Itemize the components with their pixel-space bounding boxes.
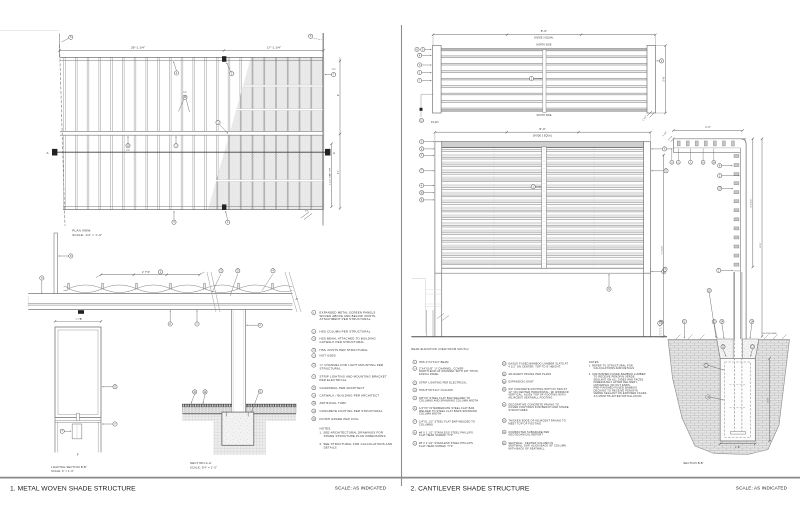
svg-text:2’-0”: 2’-0” <box>705 126 711 129</box>
svg-text:HSS 4”X4”X1/4” BEAM: HSS 4”X4”X1/4” BEAM <box>419 360 449 364</box>
svg-text:ADJACENT PAVING PER PLANS: ADJACENT PAVING PER PLANS <box>508 372 551 376</box>
svg-text:8’-6”: 8’-6” <box>760 242 762 247</box>
svg-text:PLAN VIEW:: PLAN VIEW: <box>72 228 91 232</box>
svg-text:NORTH SIDE: NORTH SIDE <box>536 44 551 46</box>
svg-text:SCALE: 1/4” = 1’-0”: SCALE: 1/4” = 1’-0” <box>72 233 102 237</box>
svg-text:PLAN: PLAN <box>431 120 439 124</box>
svg-text:REAR ELEVATION (VIEW FROM SOUT: REAR ELEVATION (VIEW FROM SOUTH) <box>411 347 468 351</box>
svg-text:HSS JOISTS PER STRUCTURAL: HSS JOISTS PER STRUCTURAL <box>320 348 369 352</box>
svg-text:GEOTECHNICAL REPORT: GEOTECHNICAL REPORT <box>508 433 543 437</box>
svg-text:9”: 9” <box>77 453 79 456</box>
svg-text:NOTES:: NOTES: <box>589 360 600 364</box>
svg-text:SCALE: 3/4” = 1’-0”: SCALE: 3/4” = 1’-0” <box>190 465 217 469</box>
svg-text:HSS COLUMN PER STRUCTURAL: HSS COLUMN PER STRUCTURAL <box>320 330 371 334</box>
svg-text:17’-1 1/4”: 17’-1 1/4” <box>267 46 281 50</box>
svg-text:TYP: TYP <box>331 69 336 71</box>
svg-text:17’: 17’ <box>336 170 340 174</box>
svg-text:LIGHTING SECTION B-B’: LIGHTING SECTION B-B’ <box>51 465 87 469</box>
svg-text:MEET TOP OF FOOTING: MEET TOP OF FOOTING <box>508 421 541 425</box>
svg-text:CONCRETE FOOTING PER STRUCTURA: CONCRETE FOOTING PER STRUCTURAL <box>320 409 383 413</box>
svg-text:GUARDRAIL PER ARCHITECT: GUARDRAIL PER ARCHITECT <box>320 386 365 390</box>
svg-text:SOUTH SIDE: SOUTH SIDE <box>763 333 778 335</box>
svg-text:ATTACHMENT PER STRUCTURAL.: ATTACHMENT PER STRUCTURAL. <box>320 317 372 321</box>
svg-text:STRUCTURAL.: STRUCTURAL. <box>320 367 342 371</box>
svg-text:7’-2 1/2”: 7’-2 1/2” <box>662 245 664 254</box>
svg-text:4 1/2” ON CENTER, TOP TO 8’ H: 4 1/2” ON CENTER, TOP TO 8’ HEIGHT. <box>508 364 561 368</box>
svg-text:SCALE: AS INDICATED: SCALE: AS INDICATED <box>736 485 788 490</box>
svg-text:ARTIFICIAL TURF: ARTIFICIAL TURF <box>320 401 347 405</box>
svg-text:CATWALK / BUILDING PER ARCHITE: CATWALK / BUILDING PER ARCHITECT <box>320 393 380 397</box>
svg-text:STRUCTURES: STRUCTURES <box>508 408 527 412</box>
svg-text:DETAILS: DETAILS <box>324 446 337 450</box>
svg-text:TYP: TYP <box>126 150 131 152</box>
svg-text:HSS 8”X8”X1/4” COLUMN: HSS 8”X8”X1/4” COLUMN <box>419 388 453 392</box>
svg-text:A’: A’ <box>296 297 299 301</box>
svg-text:2’ TYP: 2’ TYP <box>142 271 150 274</box>
svg-text:FASCIA PANEL: FASCIA PANEL <box>419 372 439 376</box>
svg-text:3-6 MONTHS AFTER INSTALLATION.: 3-6 MONTHS AFTER INSTALLATION. <box>594 394 643 398</box>
svg-text:1 1/2” GAP TYP.: 1 1/2” GAP TYP. <box>328 167 331 185</box>
svg-text:EXPANSION JOINT: EXPANSION JOINT <box>508 379 534 383</box>
svg-text:FLAT HEAD SCREW, TYP: FLAT HEAD SCREW, TYP <box>419 433 453 437</box>
svg-text:CALCULATIONS AND DETAILS: CALCULATIONS AND DETAILS <box>594 366 635 370</box>
svg-text:2%: 2% <box>305 211 308 213</box>
svg-text:2’-6 1/2”: 2’-6 1/2” <box>751 198 753 207</box>
svg-text:SCALE: 6” = 1’-0”: SCALE: 6” = 1’-0” <box>51 469 74 473</box>
svg-text:A: A <box>47 151 49 155</box>
svg-text:PER ELECTRICAL: PER ELECTRICAL <box>320 378 347 382</box>
svg-text:NOT USED: NOT USED <box>320 354 336 358</box>
svg-text:WITH BACK OF SEATWALL.: WITH BACK OF SEATWALL. <box>508 446 545 450</box>
svg-text:ADJACENT SEATWALL FOOTING: ADJACENT SEATWALL FOOTING <box>508 395 552 399</box>
svg-text:1. METAL WOVEN SHADE STRUCTURE: 1. METAL WOVEN SHADE STRUCTURE <box>10 485 136 492</box>
svg-text:4’ TYP: 4’ TYP <box>329 148 331 155</box>
svg-text:SHADE STRUCTURE PLAN DIMENSION: SHADE STRUCTURE PLAN DIMENSIONS. <box>324 434 387 438</box>
svg-text:1’-2”: 1’-2” <box>76 318 81 320</box>
svg-text:SOUTH SIDE: SOUTH SIDE <box>536 115 551 117</box>
svg-text:FINISH GRADE PER CIVIL: FINISH GRADE PER CIVIL <box>320 417 360 421</box>
svg-text:A: A <box>333 151 335 155</box>
svg-text:COLUMN WIDTH: COLUMN WIDTH <box>419 412 441 416</box>
svg-text:COLUMNS AND SPANNING COLUMN WI: COLUMNS AND SPANNING COLUMN WIDTH <box>419 399 478 403</box>
svg-text:9’: 9’ <box>336 94 340 97</box>
svg-text:COLUMNS: COLUMNS <box>419 422 433 426</box>
svg-text:CATWALK PER STRUCTURAL.: CATWALK PER STRUCTURAL. <box>320 340 366 344</box>
svg-text:2. CANTILEVER SHADE STRUCTURE: 2. CANTILEVER SHADE STRUCTURE <box>411 485 530 492</box>
svg-text:SECTION B-B’: SECTION B-B’ <box>683 461 704 465</box>
svg-text:8’-0”: 8’-0” <box>541 29 548 33</box>
svg-text:DIVIDE 3 EQUAL: DIVIDE 3 EQUAL <box>534 37 554 40</box>
svg-text:SECTION A-A’: SECTION A-A’ <box>190 461 212 465</box>
svg-text:1’-6”: 1’-6” <box>735 447 740 449</box>
svg-text:FLAT HEAD SCREW, TYP: FLAT HEAD SCREW, TYP <box>419 444 453 448</box>
svg-text:4’-6”: 4’-6” <box>767 397 769 402</box>
svg-text:STRIP LIGHTING PER ELECTRICAL: STRIP LIGHTING PER ELECTRICAL <box>419 381 467 385</box>
svg-text:TYP: TYP <box>183 92 188 94</box>
svg-text:SCALE: AS INDICATED: SCALE: AS INDICATED <box>335 485 387 490</box>
svg-text:DIVIDE 3 EQUAL: DIVIDE 3 EQUAL <box>533 135 553 138</box>
svg-text:28’-1 1/4”: 28’-1 1/4” <box>131 46 145 50</box>
svg-text:2’-6”: 2’-6” <box>662 76 665 81</box>
svg-text:8’-0”: 8’-0” <box>539 127 546 131</box>
